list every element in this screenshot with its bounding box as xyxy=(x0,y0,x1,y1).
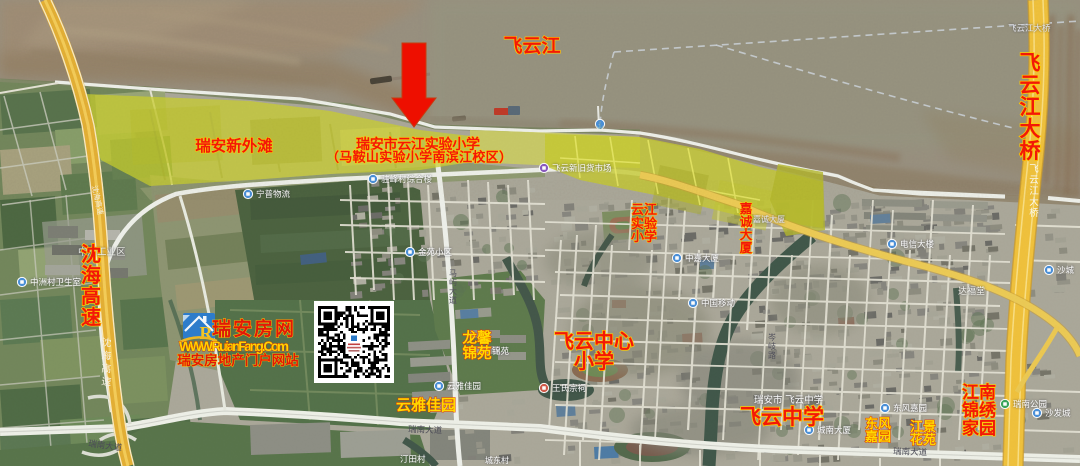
svg-text:家园: 家园 xyxy=(962,418,996,438)
svg-text:大: 大 xyxy=(740,227,753,242)
svg-text:龙馨: 龙馨 xyxy=(462,329,492,347)
svg-text:飞: 飞 xyxy=(1020,52,1041,75)
svg-text:WWW.RuianFang.Com: WWW.RuianFang.Com xyxy=(179,339,289,354)
svg-text:瑞安房网: 瑞安房网 xyxy=(212,317,296,340)
svg-text:云江: 云江 xyxy=(631,202,657,217)
svg-text:大: 大 xyxy=(1020,118,1041,141)
svg-text:飞云中学: 飞云中学 xyxy=(740,405,824,429)
svg-text:锦苑: 锦苑 xyxy=(463,344,492,362)
svg-text:瑞安新外滩: 瑞安新外滩 xyxy=(195,136,273,155)
svg-text:（马鞍山实验小学南滨江校区）: （马鞍山实验小学南滨江校区） xyxy=(326,150,512,165)
svg-text:海: 海 xyxy=(81,263,101,287)
svg-text:江南: 江南 xyxy=(962,382,996,402)
svg-text:嘉园: 嘉园 xyxy=(864,429,891,444)
svg-text:小学: 小学 xyxy=(631,229,657,244)
svg-text:飞云中心: 飞云中心 xyxy=(554,329,634,353)
svg-text:厦: 厦 xyxy=(740,240,753,255)
svg-text:瑞安房地产门户网站: 瑞安房地产门户网站 xyxy=(177,352,299,368)
svg-text:云: 云 xyxy=(1020,74,1041,97)
svg-text:江: 江 xyxy=(1020,96,1041,119)
svg-text:沈: 沈 xyxy=(81,243,101,266)
svg-text:云雅佳园: 云雅佳园 xyxy=(396,396,456,414)
svg-text:速: 速 xyxy=(81,306,101,329)
svg-text:嘉: 嘉 xyxy=(739,201,753,216)
svg-text:桥: 桥 xyxy=(1020,139,1042,163)
svg-text:花苑: 花苑 xyxy=(910,432,936,447)
svg-text:高: 高 xyxy=(81,284,101,308)
svg-text:锦绣: 锦绣 xyxy=(962,400,997,420)
svg-text:小学: 小学 xyxy=(574,349,614,373)
svg-text:飞云江: 飞云江 xyxy=(503,35,560,57)
svg-text:诚: 诚 xyxy=(740,214,753,229)
